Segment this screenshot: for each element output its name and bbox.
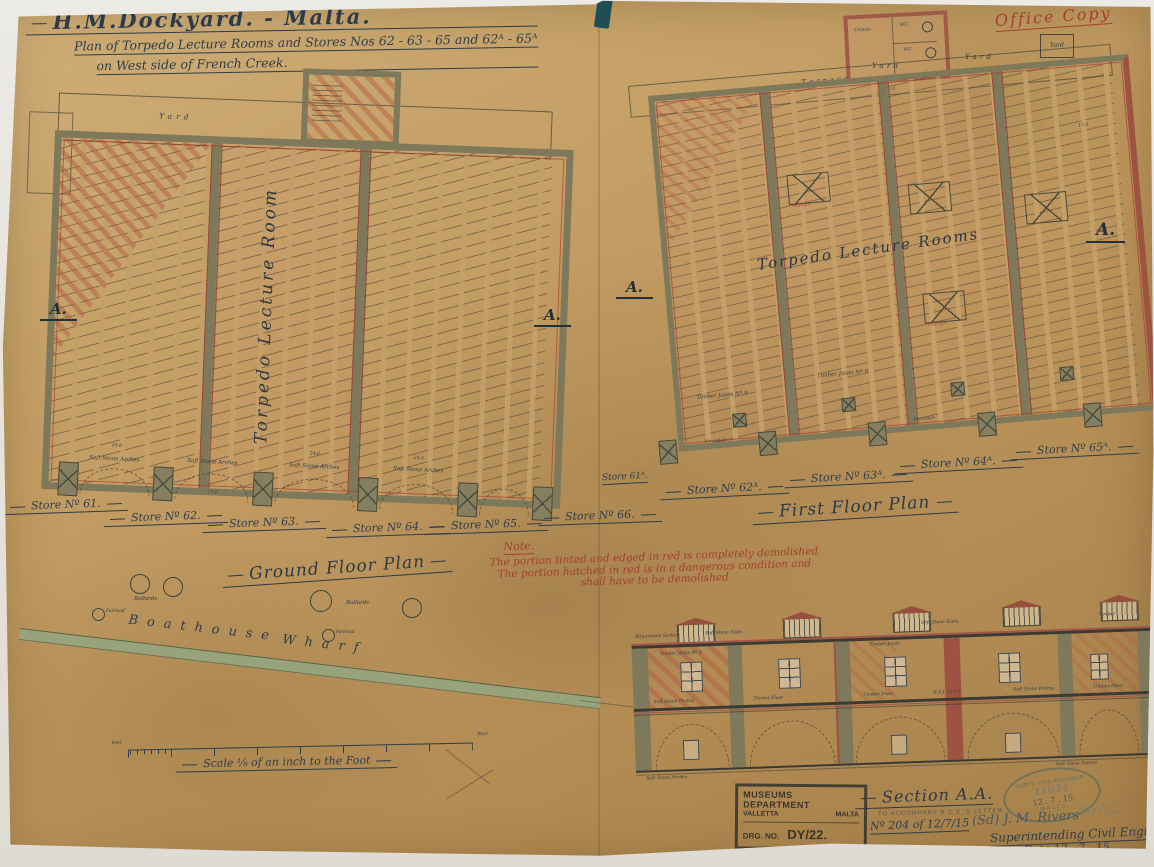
pier: [252, 472, 274, 507]
lower-window: [1005, 732, 1022, 753]
dimension: 24.6: [310, 452, 320, 457]
paper-background: H.M.Dockyard. - Malta. Plan of Torpedo L…: [0, 0, 1154, 867]
scale-caption: Scale ⅛ of an inch to the Foot: [176, 754, 398, 773]
section-label: R.S.J. 15 x 5: [933, 691, 961, 697]
pier: [57, 461, 79, 496]
department-stamp: MUSEUMS DEPARTMENT VALLETTA MALTA DRG. N…: [735, 783, 868, 850]
lower-window: [891, 734, 908, 755]
drg-no-value: DY/22.: [787, 827, 827, 842]
wc-fixture: [922, 21, 934, 33]
letter-reference: Nº 204 of 12/7/15: [870, 817, 970, 835]
drg-no-label: DRG. NO.: [743, 831, 780, 840]
first-floor-caption: First Floor Plan: [752, 491, 958, 526]
section-label: Timber: [1099, 613, 1116, 619]
section-caption: Section A.A.: [855, 784, 994, 810]
signature: (Sd) J. M. Rivers: [972, 809, 1080, 829]
dimension: 17.6: [207, 491, 217, 496]
section-window: [998, 652, 1021, 683]
fairlead-label: Fairlead: [106, 610, 125, 615]
date-line: Date 12 . 7 . 15: [1024, 842, 1110, 859]
section-label: Soft Stone Slabs: [921, 621, 959, 627]
pier: [152, 466, 174, 501]
scale-feet-right: Feet: [478, 733, 488, 738]
arch: [274, 477, 355, 508]
scale-feet-left: Feet: [112, 742, 122, 747]
fairlead-label: Fairlead: [336, 631, 355, 636]
section-label: Timber Floor: [863, 693, 893, 699]
section-label: Soft Stone Slabs: [705, 631, 743, 637]
roof-lantern: [1002, 606, 1041, 627]
bollard: [310, 590, 332, 612]
dimension: 24.6: [112, 444, 122, 449]
store-label-63: Store Nº 63.: [202, 514, 326, 533]
stair-lines: [312, 81, 343, 122]
verandah-label: Verandah: [913, 417, 935, 424]
bollard: [402, 598, 422, 618]
wc-fixture: [925, 47, 937, 59]
wc-divider: [893, 41, 937, 44]
wc-label: W.C.: [900, 23, 910, 28]
bollard: [130, 574, 150, 594]
arch: [79, 466, 150, 497]
note-block: Note. The portion tinted and edged in re…: [485, 524, 823, 592]
first-floor-plan: Skylight Skylight Torpedo Lecture Rooms …: [648, 54, 1154, 452]
first-floor-marker-left: A.: [616, 278, 653, 299]
arch: [479, 487, 530, 517]
section-window: [778, 658, 801, 689]
ground-yard-label: Yard: [159, 112, 193, 122]
store-label-62a: Store Nº 62ᴬ.: [660, 479, 789, 501]
first-floor-marker-right: A.: [1086, 220, 1125, 243]
office-copy-note: Office Copy: [994, 4, 1112, 32]
skylight-box: [908, 181, 952, 215]
sheet-title: H.M.Dockyard. - Malta.: [25, 2, 537, 36]
ground-section-marker-left: A.: [40, 300, 77, 321]
pier: [658, 439, 678, 464]
drawing-sheet: H.M.Dockyard. - Malta. Plan of Torpedo L…: [0, 0, 1154, 867]
pier: [868, 421, 888, 446]
store-label-65a: Store Nº 65ᴬ.: [1010, 439, 1139, 461]
bollard: [163, 577, 183, 597]
department-country: MALTA: [836, 811, 860, 818]
entrance-structure: [301, 68, 402, 147]
store-label-61a: Store 61ᴬ.: [602, 471, 649, 485]
skylight-box: [786, 172, 830, 206]
pier: [977, 411, 997, 436]
roof-lantern: [1100, 600, 1139, 621]
store-label-65: Store Nº 65.: [424, 516, 548, 535]
section-arch: [748, 719, 836, 767]
verandah-label: Verandah: [704, 439, 726, 446]
wharf-word-2: Wharf: [281, 633, 368, 657]
red-edging: [51, 140, 565, 500]
pier: [357, 477, 379, 512]
arch: [174, 471, 249, 502]
lower-window: [683, 740, 700, 761]
wc-label: W.C.: [903, 48, 913, 53]
note-heading: Note.: [503, 540, 534, 555]
section-arch: [1078, 708, 1140, 755]
ground-hall: Torpedo Lecture Room: [41, 130, 573, 509]
dimension: 17.3: [1078, 124, 1088, 130]
ground-section-marker-right: A.: [534, 306, 571, 327]
title-block: H.M.Dockyard. - Malta. Plan of Torpedo L…: [25, 2, 538, 77]
section-label: Timber Floor: [753, 697, 783, 703]
section-drawing: Bituminous Surface Soft Stone Slabs Soft…: [630, 584, 1154, 797]
section-label: Timber Floor: [1093, 685, 1123, 691]
pier: [1083, 402, 1103, 427]
skylight-box: [922, 290, 966, 324]
wharf-word-1: Boathouse: [128, 614, 279, 645]
roof-pier: [732, 413, 747, 428]
store-label-64a: Store Nº 64ᴬ.: [894, 453, 1023, 475]
bollards-label: Bollards: [346, 600, 369, 606]
arch-label: Soft Stone Arches: [289, 462, 339, 471]
section-label: Bituminous Surface: [635, 634, 680, 641]
section-window: [1090, 653, 1109, 680]
section-label: Timber Joists: [870, 643, 900, 649]
pencil-mark: [446, 770, 493, 800]
bollards-label: Bollards: [134, 596, 157, 602]
pencil-drawing-ref: DY/22: [1080, 803, 1121, 820]
arch-label: Soft Stone Arches: [187, 458, 237, 467]
roof-pier: [1059, 366, 1074, 381]
arch-label: Soft Stone Arches: [89, 455, 139, 464]
fold-line: [598, 0, 600, 867]
department-city: VALLETTA: [743, 810, 779, 817]
dimension: 24.6: [414, 457, 424, 462]
arch-label: Soft Stone Arches: [393, 466, 443, 475]
pier: [758, 431, 778, 456]
roof-pier: [950, 382, 965, 397]
roof-lantern: [783, 617, 822, 638]
binding-mark: [594, 0, 613, 29]
store-label-66: Store Nº 66.: [538, 507, 662, 526]
scale-bar: Feet Feet Scale ⅛ of an inch to the Foot: [128, 736, 479, 777]
urinals-label: Urinals: [854, 28, 871, 34]
section-window: [884, 656, 907, 687]
fairlead: [92, 608, 105, 621]
scale-subdivisions: [130, 749, 170, 755]
section-label: Soft Stone Paving: [1013, 687, 1054, 693]
department-name: MUSEUMS DEPARTMENT: [743, 789, 859, 810]
pier: [457, 482, 479, 517]
ground-floor-caption: Ground Floor Plan: [222, 550, 453, 588]
arch: [379, 482, 454, 513]
roof-pier: [841, 397, 856, 412]
skylight-box: [1024, 191, 1068, 225]
section-label: Soft Stone Arches: [646, 776, 687, 782]
section-window: [680, 662, 703, 693]
